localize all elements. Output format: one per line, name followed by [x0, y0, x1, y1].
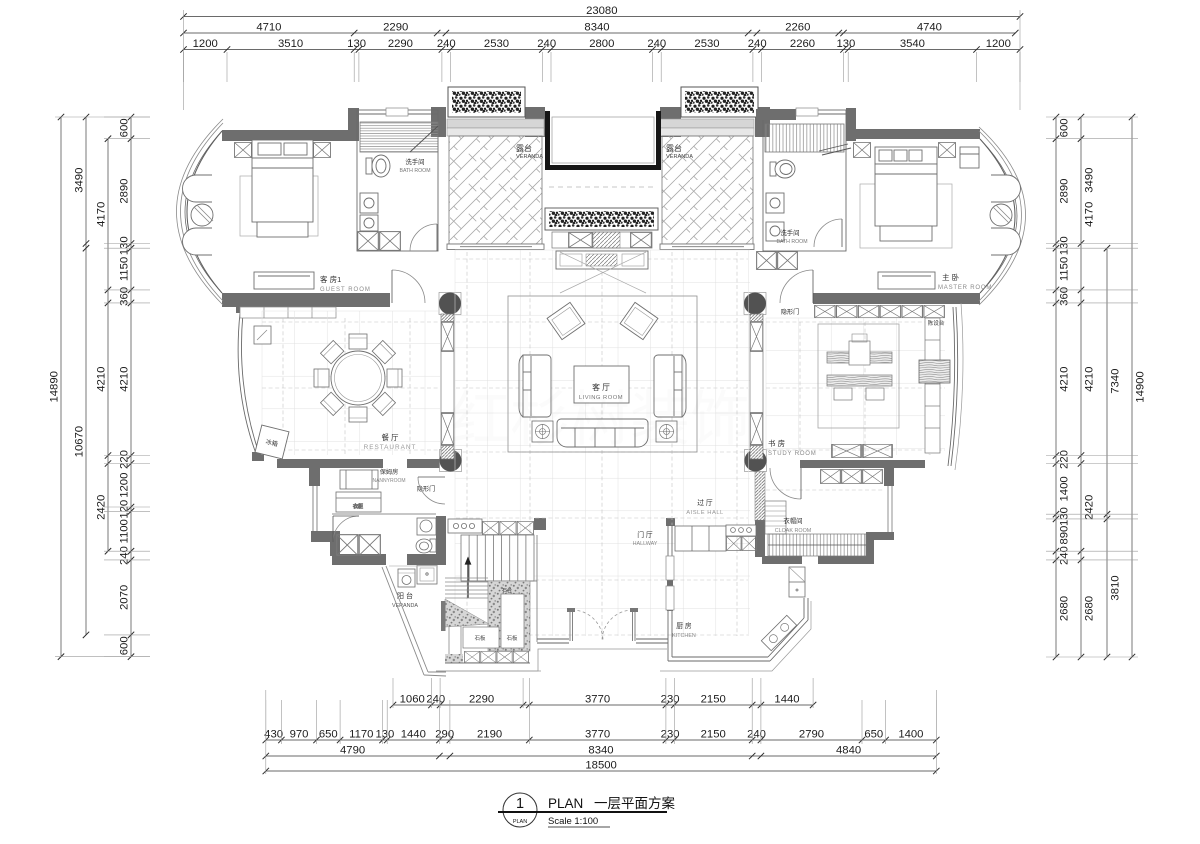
svg-text:厨 房: 厨 房: [676, 621, 692, 630]
svg-text:890: 890: [1059, 526, 1071, 545]
svg-text:10670: 10670: [74, 426, 86, 457]
svg-text:1440: 1440: [401, 729, 426, 741]
svg-text:2290: 2290: [383, 22, 408, 34]
svg-text:HALLWAY: HALLWAY: [633, 541, 658, 547]
svg-text:过 厅: 过 厅: [697, 498, 713, 507]
svg-text:2260: 2260: [785, 22, 810, 34]
svg-text:PLAN: PLAN: [513, 819, 527, 825]
svg-text:650: 650: [864, 729, 883, 741]
svg-text:露台: 露台: [666, 143, 682, 153]
svg-text:1150: 1150: [1059, 257, 1071, 281]
svg-text:PLAN: PLAN: [548, 796, 583, 811]
svg-text:23080: 23080: [586, 5, 617, 17]
svg-text:2890: 2890: [1059, 179, 1071, 204]
svg-text:130: 130: [347, 38, 366, 50]
svg-text:2290: 2290: [388, 38, 413, 50]
svg-text:1060: 1060: [400, 694, 425, 706]
svg-text:MASTER ROOM: MASTER ROOM: [938, 285, 992, 291]
svg-text:Scale 1:100: Scale 1:100: [548, 816, 598, 827]
svg-text:230: 230: [661, 694, 680, 706]
svg-text:陈设台: 陈设台: [928, 319, 945, 327]
svg-text:主 卧: 主 卧: [942, 272, 960, 282]
svg-text:600: 600: [1059, 118, 1071, 137]
svg-text:220: 220: [1059, 450, 1071, 469]
svg-text:600: 600: [119, 636, 131, 655]
svg-text:2260: 2260: [790, 38, 815, 50]
svg-text:1400: 1400: [898, 729, 923, 741]
svg-text:600: 600: [119, 118, 131, 137]
svg-text:240: 240: [426, 694, 445, 706]
svg-text:BATH ROOM: BATH ROOM: [776, 239, 807, 245]
svg-text:3490: 3490: [1084, 168, 1096, 193]
svg-text:240: 240: [747, 729, 766, 741]
svg-text:VERANDA: VERANDA: [516, 154, 543, 160]
svg-text:3770: 3770: [585, 694, 610, 706]
svg-text:石板: 石板: [507, 634, 518, 642]
svg-text:石台: 石台: [502, 587, 512, 594]
svg-text:RESTAURANT: RESTAURANT: [364, 444, 417, 451]
svg-text:CLOAK ROOM: CLOAK ROOM: [775, 528, 812, 534]
svg-text:240: 240: [537, 38, 556, 50]
svg-text:1: 1: [516, 796, 524, 812]
svg-text:3490: 3490: [74, 168, 86, 193]
svg-text:650: 650: [319, 729, 338, 741]
svg-text:门 厅: 门 厅: [637, 530, 653, 539]
svg-text:3510: 3510: [278, 38, 303, 50]
svg-text:4210: 4210: [119, 367, 131, 392]
svg-text:7340: 7340: [1110, 369, 1122, 394]
svg-text:2790: 2790: [799, 729, 824, 741]
svg-text:4210: 4210: [96, 367, 108, 392]
svg-text:14890: 14890: [49, 371, 61, 402]
svg-text:2150: 2150: [701, 729, 726, 741]
svg-text:3770: 3770: [585, 729, 610, 741]
svg-text:4170: 4170: [1084, 202, 1096, 227]
svg-text:240: 240: [1059, 546, 1071, 565]
svg-text:NANNYROOM: NANNYROOM: [372, 478, 405, 484]
svg-text:露台: 露台: [516, 143, 532, 153]
svg-text:洗手间: 洗手间: [780, 228, 799, 237]
svg-text:4170: 4170: [96, 202, 108, 227]
svg-text:一层平面方案: 一层平面方案: [594, 795, 675, 811]
svg-text:2800: 2800: [589, 38, 614, 50]
svg-text:1170: 1170: [349, 729, 373, 741]
svg-text:隐形门: 隐形门: [781, 308, 800, 316]
svg-text:1440: 1440: [774, 694, 799, 706]
svg-text:8340: 8340: [584, 22, 609, 34]
svg-text:1400: 1400: [1059, 476, 1071, 501]
svg-text:2680: 2680: [1059, 596, 1071, 621]
svg-text:VERANDA: VERANDA: [666, 154, 693, 160]
svg-text:书 房: 书 房: [768, 438, 785, 448]
svg-text:130: 130: [1059, 236, 1071, 255]
svg-text:14900: 14900: [1135, 371, 1147, 402]
svg-text:2890: 2890: [119, 179, 131, 204]
svg-text:18500: 18500: [585, 760, 616, 772]
svg-text:保姆房: 保姆房: [380, 468, 399, 476]
svg-text:130: 130: [1059, 507, 1071, 526]
svg-text:1200: 1200: [193, 38, 218, 50]
svg-text:1100: 1100: [119, 519, 131, 543]
svg-text:2530: 2530: [484, 38, 509, 50]
svg-text:1200: 1200: [986, 38, 1011, 50]
svg-text:AISLE HALL: AISLE HALL: [686, 510, 724, 516]
svg-text:130: 130: [836, 38, 855, 50]
svg-text:1150: 1150: [119, 257, 131, 281]
svg-text:4210: 4210: [1059, 367, 1071, 392]
svg-text:4210: 4210: [1084, 367, 1096, 392]
svg-text:1200: 1200: [119, 473, 131, 498]
svg-text:2680: 2680: [1084, 596, 1096, 621]
svg-text:130: 130: [375, 729, 394, 741]
svg-text:4710: 4710: [256, 22, 281, 34]
svg-text:BATH ROOM: BATH ROOM: [399, 168, 430, 174]
svg-text:8340: 8340: [588, 745, 613, 757]
svg-text:餐 厅: 餐 厅: [381, 433, 399, 442]
svg-text:240: 240: [437, 38, 456, 50]
svg-text:3810: 3810: [1110, 575, 1122, 600]
svg-text:4840: 4840: [836, 745, 861, 757]
svg-text:3540: 3540: [900, 38, 925, 50]
svg-text:2070: 2070: [119, 585, 131, 610]
svg-text:石板: 石板: [475, 634, 486, 642]
svg-text:2420: 2420: [1084, 495, 1096, 520]
svg-text:4790: 4790: [340, 745, 365, 757]
svg-text:红杉树装饰: 红杉树装饰: [450, 386, 750, 453]
svg-text:2530: 2530: [694, 38, 719, 50]
svg-text:4740: 4740: [917, 22, 942, 34]
svg-text:衣帽间: 衣帽间: [783, 516, 802, 525]
svg-text:STUDY ROOM: STUDY ROOM: [768, 451, 817, 457]
svg-text:2190: 2190: [477, 729, 502, 741]
svg-text:KITCHEN: KITCHEN: [672, 633, 696, 639]
svg-text:240: 240: [647, 38, 666, 50]
svg-text:客 房1: 客 房1: [320, 274, 341, 284]
svg-text:230: 230: [661, 729, 680, 741]
svg-text:GUEST ROOM: GUEST ROOM: [320, 287, 371, 293]
svg-text:2150: 2150: [701, 694, 726, 706]
svg-text:2290: 2290: [469, 694, 494, 706]
svg-text:970: 970: [290, 729, 309, 741]
svg-text:240: 240: [748, 38, 767, 50]
svg-text:洗手间: 洗手间: [405, 157, 424, 166]
svg-text:衣柜: 衣柜: [353, 503, 363, 510]
